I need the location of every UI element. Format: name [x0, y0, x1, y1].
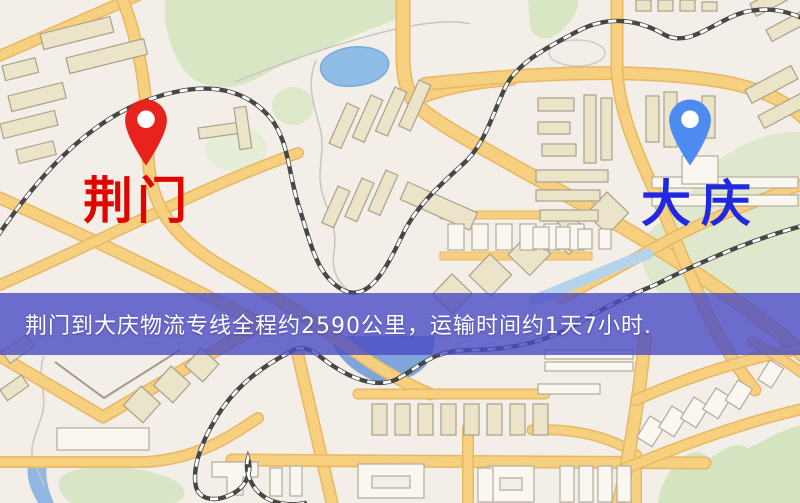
destination-city-label: 大庆 [641, 179, 761, 229]
origin-pin[interactable] [124, 97, 168, 168]
destination-pin-icon [668, 97, 712, 168]
map-screenshot: 荆门 大庆 荆门到大庆物流专线全程约2590公里，运输时间约1天7小时. [0, 0, 800, 503]
destination-pin[interactable] [668, 97, 712, 168]
route-info-text: 荆门到大庆物流专线全程约2590公里，运输时间约1天7小时. [0, 308, 652, 340]
route-info-banner: 荆门到大庆物流专线全程约2590公里，运输时间约1天7小时. [0, 293, 800, 355]
origin-pin-icon [124, 97, 168, 168]
map-canvas[interactable] [0, 0, 800, 503]
origin-city-label: 荆门 [83, 176, 191, 226]
